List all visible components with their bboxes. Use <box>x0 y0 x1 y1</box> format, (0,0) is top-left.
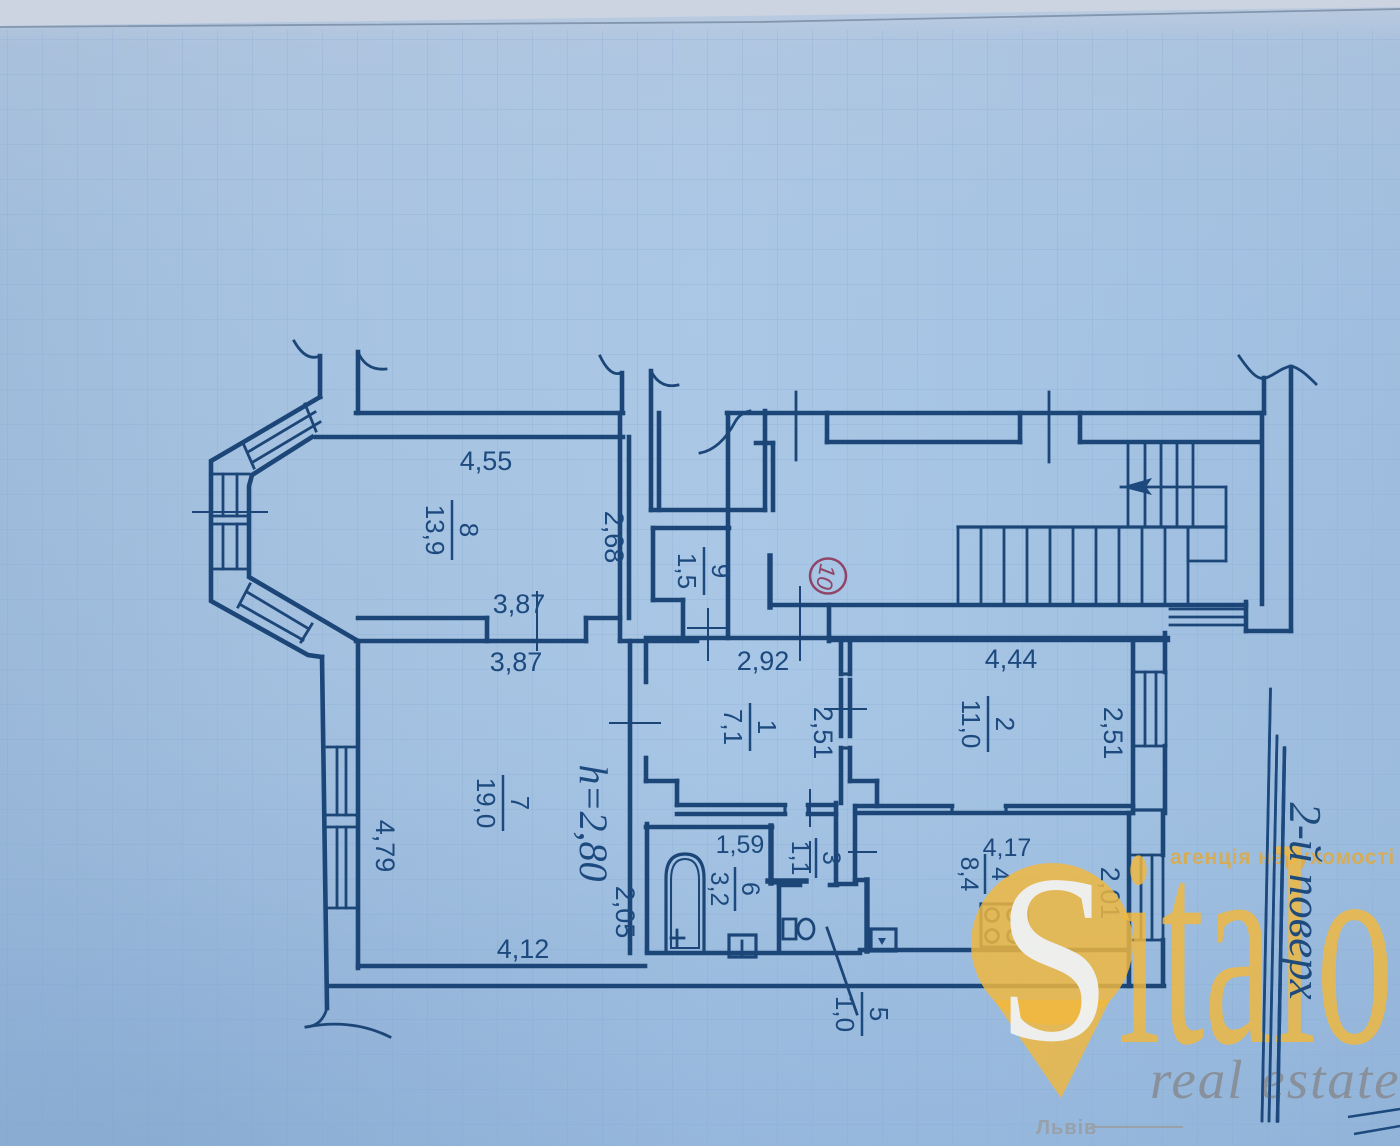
svg-text:8,4: 8,4 <box>955 857 983 892</box>
svg-text:5: 5 <box>864 1007 894 1021</box>
svg-text:10: 10 <box>811 562 841 592</box>
svg-text:Львів: Львів <box>1036 1117 1097 1139</box>
svg-text:2,51: 2,51 <box>1098 707 1128 760</box>
svg-text:3,87: 3,87 <box>493 589 546 619</box>
svg-text:4,55: 4,55 <box>460 446 513 476</box>
svg-text:real estate: real estate <box>1150 1049 1400 1110</box>
svg-text:2,68: 2,68 <box>599 511 629 564</box>
svg-text:3,87: 3,87 <box>490 647 543 677</box>
svg-text:19,0: 19,0 <box>471 778 501 829</box>
svg-text:4,12: 4,12 <box>497 934 550 964</box>
svg-text:13,9: 13,9 <box>420 505 450 556</box>
svg-text:1,5: 1,5 <box>672 553 702 589</box>
svg-text:4,44: 4,44 <box>985 644 1038 674</box>
svg-text:S: S <box>997 827 1112 1092</box>
svg-text:3,2: 3,2 <box>705 872 733 907</box>
svg-text:7,1: 7,1 <box>718 709 748 745</box>
svg-text:2,92: 2,92 <box>737 646 790 676</box>
svg-text:7: 7 <box>505 796 535 810</box>
svg-text:6: 6 <box>736 882 764 896</box>
svg-text:1: 1 <box>752 720 782 734</box>
svg-text:4,79: 4,79 <box>370 820 400 873</box>
svg-text:2-й поверх: 2-й поверх <box>1280 802 1330 999</box>
svg-text:2: 2 <box>990 717 1020 731</box>
svg-text:3: 3 <box>817 851 845 865</box>
svg-text:2,51: 2,51 <box>808 707 838 760</box>
svg-text:2,05: 2,05 <box>610 886 640 939</box>
svg-text:h=2,80: h=2,80 <box>571 765 616 882</box>
svg-text:1,1: 1,1 <box>786 841 814 876</box>
svg-text:1,0: 1,0 <box>830 996 860 1032</box>
svg-text:11,0: 11,0 <box>956 700 986 749</box>
svg-text:1,59: 1,59 <box>716 831 765 859</box>
svg-text:9: 9 <box>706 564 736 578</box>
svg-text:8: 8 <box>454 523 484 537</box>
